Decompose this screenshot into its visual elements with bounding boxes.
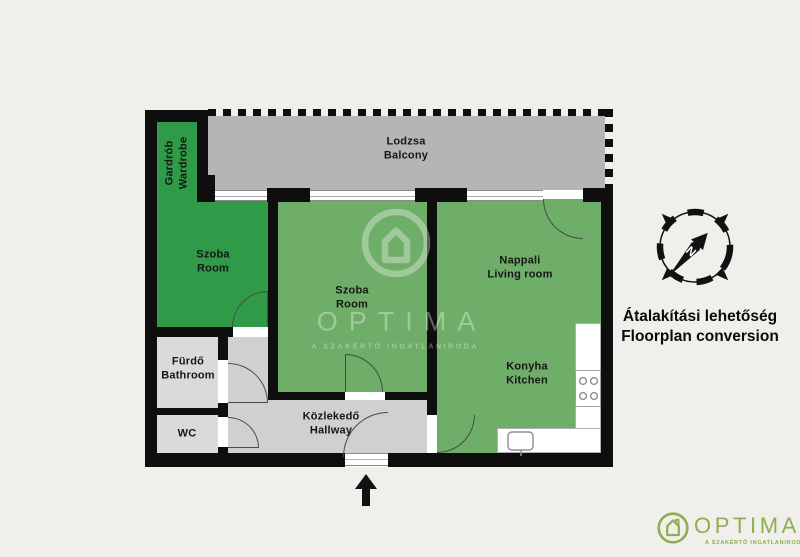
wall (278, 392, 345, 400)
optima-brand-text: OPTIMA (694, 513, 800, 539)
watermark-logo-icon (356, 203, 436, 283)
door-opening (218, 360, 228, 403)
door-opening (543, 190, 583, 199)
wall (267, 188, 310, 202)
window (467, 190, 543, 201)
balcony-railing-right (605, 109, 613, 190)
stove-icon (575, 370, 601, 407)
optima-logo-icon (656, 511, 690, 545)
watermark-brand-text: OPTIMA (306, 307, 487, 338)
compass-icon: N (652, 202, 738, 288)
watermark-tagline-text: A SZAKÉRTŐ INGATLANIRODA (309, 344, 479, 351)
door-opening (233, 327, 268, 337)
label-kitchen: KonyhaKitchen (506, 361, 548, 388)
wall (388, 453, 613, 467)
label-room-left: SzobaRoom (196, 249, 229, 276)
annotation-line-en: Floorplan conversion (600, 327, 800, 347)
wall (218, 337, 228, 360)
wall (197, 175, 215, 202)
sink-icon (506, 430, 536, 456)
balcony-railing-top (208, 109, 613, 116)
door-opening (345, 392, 385, 400)
optima-tagline-text: A SZAKÉRTŐ INGATLANIRODA (705, 540, 800, 546)
floorplan-image: LodzsaBalcony GardróbWardrobe SzobaRoom … (0, 0, 800, 557)
wall (145, 110, 157, 467)
window (215, 190, 267, 201)
annotation-line-hu: Átalakítási lehetőség (600, 307, 800, 327)
label-wardrobe: GardróbWardrobe (164, 137, 191, 190)
wall (145, 453, 345, 467)
door-opening (427, 415, 437, 453)
label-living-room: NappaliLiving room (487, 255, 552, 282)
entrance-arrow-icon (354, 474, 378, 507)
wall (415, 188, 467, 202)
wall (385, 392, 427, 400)
label-balcony: LodzsaBalcony (384, 136, 428, 163)
label-hallway: KözlekedőHallway (303, 411, 360, 438)
wall (157, 408, 228, 415)
wall (145, 110, 208, 122)
wall (157, 327, 233, 337)
door-opening (218, 417, 228, 447)
window (310, 190, 415, 201)
label-bathroom: FürdőBathroom (161, 356, 215, 383)
label-wc: WC (178, 427, 197, 441)
wall (268, 202, 278, 400)
annotation-text: Átalakítási lehetőség Floorplan conversi… (600, 307, 800, 347)
